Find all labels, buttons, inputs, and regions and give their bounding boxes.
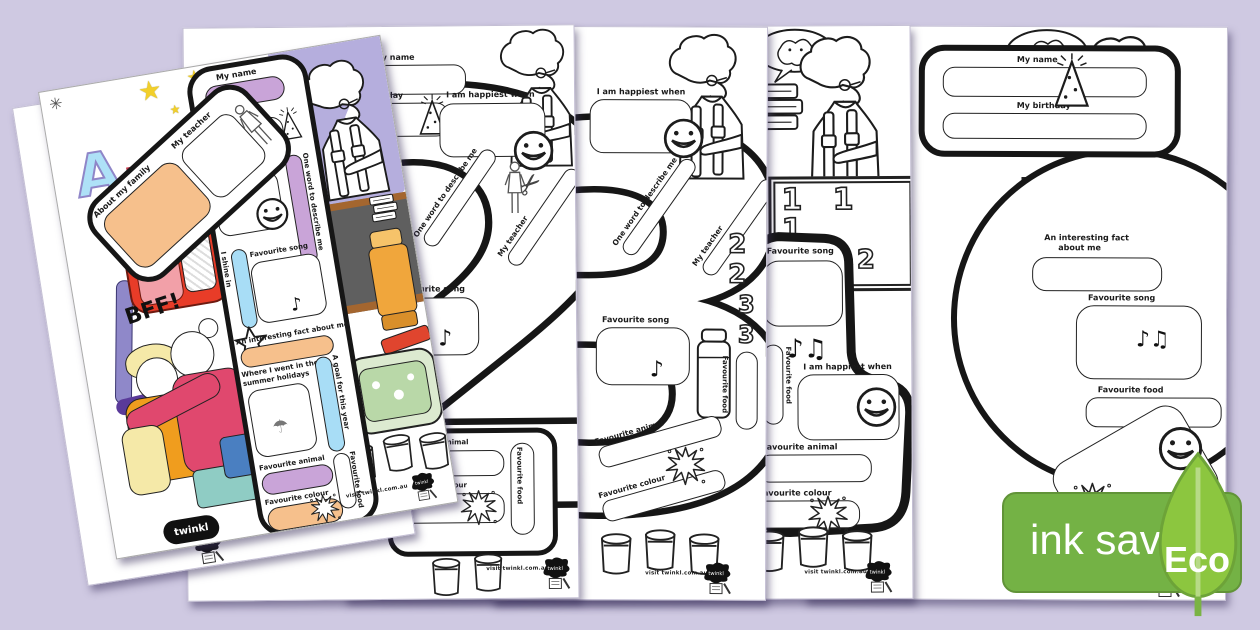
paint-pot-icon	[794, 522, 832, 568]
favourite-song-field	[596, 327, 690, 385]
twinkl-logo-large: twinkl	[162, 513, 221, 546]
number-shape-top-bar: My name My birthday	[919, 45, 1181, 158]
music-notes-icon: ♪♫	[1136, 327, 1170, 352]
my-name-field	[943, 67, 1147, 98]
twinkl-logo	[862, 559, 892, 593]
paint-splash-icon	[663, 443, 707, 487]
twinkl-brand-text: twinkl	[173, 522, 209, 539]
star-doodle-icon: ★	[136, 75, 164, 108]
field-label-happiest: I am happiest when	[803, 362, 892, 371]
party-hat-icon	[1053, 53, 1091, 109]
music-note-icon: ♪	[438, 326, 452, 351]
visit-twinkl-url: visit twinkl.com.au	[645, 570, 708, 576]
paint-splash-icon	[306, 490, 343, 527]
paint-pot-icon	[378, 428, 418, 475]
field-label-interesting-fact-1: An interesting fact	[1044, 233, 1129, 242]
favourite-song-field	[249, 252, 328, 325]
field-label-favourite-song: Favourite song	[1088, 293, 1155, 302]
paint-pot-icon	[428, 554, 464, 596]
product-preview: 1 1 1 2 2 3 3 3 My name My birthday An i…	[0, 0, 1260, 630]
field-label-favourite-animal: Favourite animal	[762, 442, 838, 451]
twinkl-logo	[701, 561, 731, 595]
board-numbers-row2: 2 2	[728, 230, 766, 290]
field-label-favourite-song: Favourite song	[602, 315, 669, 324]
eco-leaf-icon	[1148, 448, 1248, 620]
favourite-animal-field	[758, 454, 872, 483]
field-label-favourite-song: Favourite song	[767, 246, 834, 255]
favourite-song-field	[763, 260, 843, 326]
umbrella-doodle-icon: ☂	[271, 415, 290, 438]
field-label-my-name: My name	[1017, 55, 1058, 64]
smiley-face-icon	[253, 194, 292, 233]
visit-twinkl-url: visit twinkl.com.au	[804, 569, 867, 575]
teacher-figure-doodle	[503, 160, 528, 218]
field-label-favourite-food: Favourite food	[784, 347, 792, 427]
music-note-icon: ♪	[650, 357, 664, 382]
twinkl-logo	[407, 469, 438, 503]
favourite-food-pill	[736, 352, 758, 430]
firework-doodle-icon: ✳	[48, 93, 64, 114]
field-label-favourite-food: Favourite food	[515, 447, 524, 531]
my-birthday-field	[943, 113, 1147, 140]
field-label-happiest: I am happiest when	[446, 90, 535, 100]
twinkl-logo	[540, 555, 570, 589]
paint-pot-icon	[597, 529, 635, 575]
smiley-face-icon	[855, 386, 897, 428]
interesting-fact-field	[1032, 257, 1162, 291]
field-label-favourite-food: Favourite food	[1098, 385, 1164, 394]
field-label-interesting-fact-2: about me	[1058, 243, 1101, 252]
eco-label: Eco	[1157, 539, 1237, 581]
field-label-happiest: I am happiest when	[597, 87, 686, 96]
paint-splash-icon	[459, 487, 499, 527]
music-notes-icon: ♪♫	[787, 334, 827, 364]
star-doodle-icon: ★	[169, 102, 182, 118]
paint-pot-icon	[641, 525, 679, 571]
